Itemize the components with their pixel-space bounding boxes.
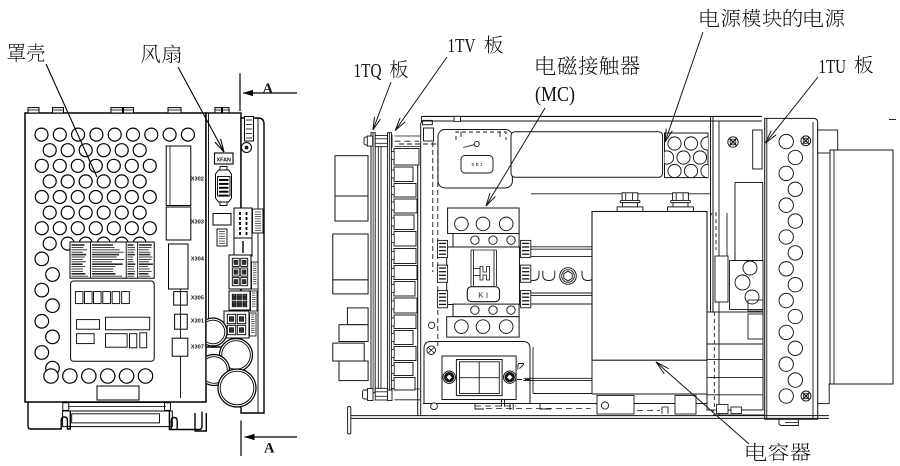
svg-text:XFAN: XFAN <box>217 157 231 163</box>
svg-text:1TU: 1TU <box>819 57 847 78</box>
svg-text:X304: X304 <box>191 256 205 262</box>
svg-text:1TQ: 1TQ <box>354 61 382 82</box>
svg-text:1TV: 1TV <box>448 36 476 57</box>
svg-text:X303: X303 <box>191 219 204 225</box>
svg-text:X307: X307 <box>191 344 204 350</box>
svg-text:(MC): (MC) <box>535 82 575 106</box>
svg-text:X305: X305 <box>191 295 204 301</box>
svg-text:X302: X302 <box>191 176 204 182</box>
svg-text:K 1: K 1 <box>478 291 489 299</box>
svg-text:X301: X301 <box>191 318 204 324</box>
svg-text:A: A <box>264 441 275 457</box>
svg-text:A: A <box>263 81 274 97</box>
svg-text:S E 1: S E 1 <box>471 162 483 167</box>
